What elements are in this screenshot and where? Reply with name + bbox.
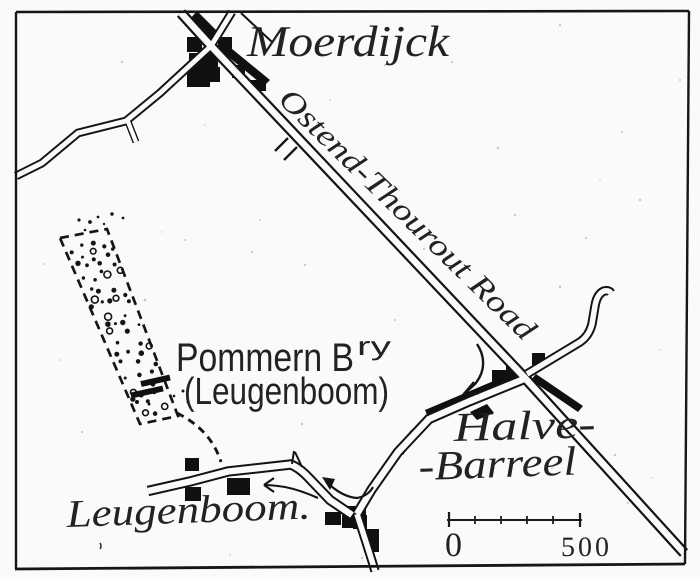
svg-text:Moerdijck: Moerdijck <box>246 17 451 66</box>
svg-text:ry: ry <box>357 331 391 361</box>
svg-text:-Barreel: -Barreel <box>418 438 578 489</box>
svg-text:Leugenboom.: Leugenboom. <box>65 485 312 537</box>
svg-text:0: 0 <box>445 527 462 564</box>
svg-text:500: 500 <box>561 532 609 563</box>
svg-text:(Leugenboom): (Leugenboom) <box>184 371 389 413</box>
